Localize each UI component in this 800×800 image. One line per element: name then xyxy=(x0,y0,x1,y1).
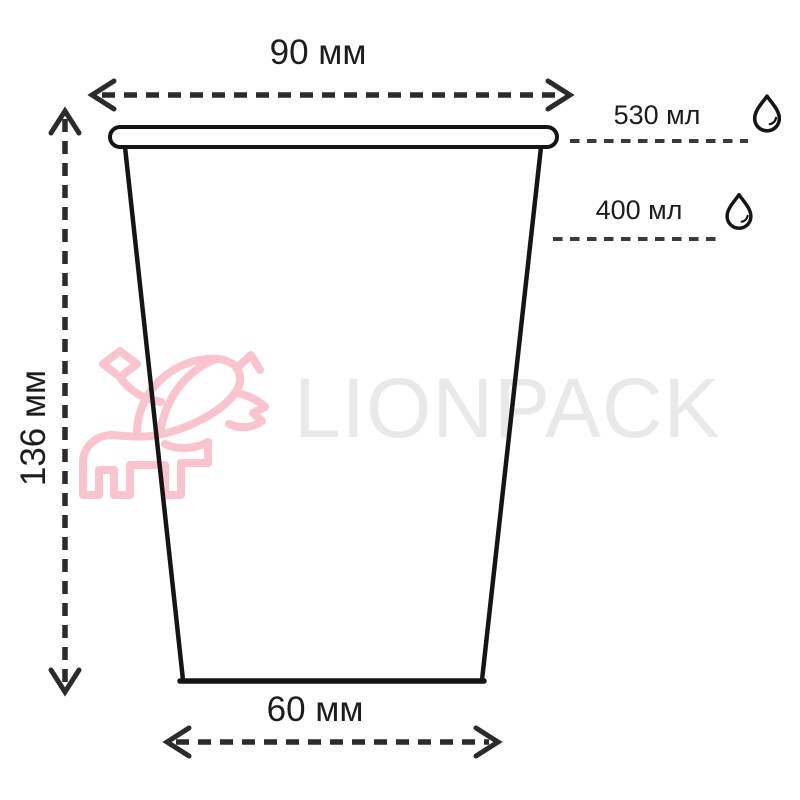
top-width-label: 90 мм xyxy=(238,35,398,72)
top-width-arrow xyxy=(92,81,570,109)
bottom-width-label: 60 мм xyxy=(235,692,395,729)
cup-outline xyxy=(110,127,557,681)
diagram-canvas: LIONPACK xyxy=(0,0,800,800)
volume-nominal-label: 400 мл xyxy=(559,196,719,224)
height-label: 136 мм xyxy=(16,348,54,508)
water-drop-icon xyxy=(755,96,780,131)
lion-body-legs xyxy=(83,435,208,495)
cup-right-wall xyxy=(482,147,541,680)
lion-ear xyxy=(239,355,260,370)
height-arrow xyxy=(51,111,79,692)
bottom-width-arrow xyxy=(167,728,498,756)
volume-full-label: 530 мл xyxy=(577,101,737,129)
cup-left-wall xyxy=(125,147,183,680)
cup-rim xyxy=(110,127,557,147)
lion-logo-icon xyxy=(83,351,265,495)
water-drop-icon xyxy=(727,195,751,228)
